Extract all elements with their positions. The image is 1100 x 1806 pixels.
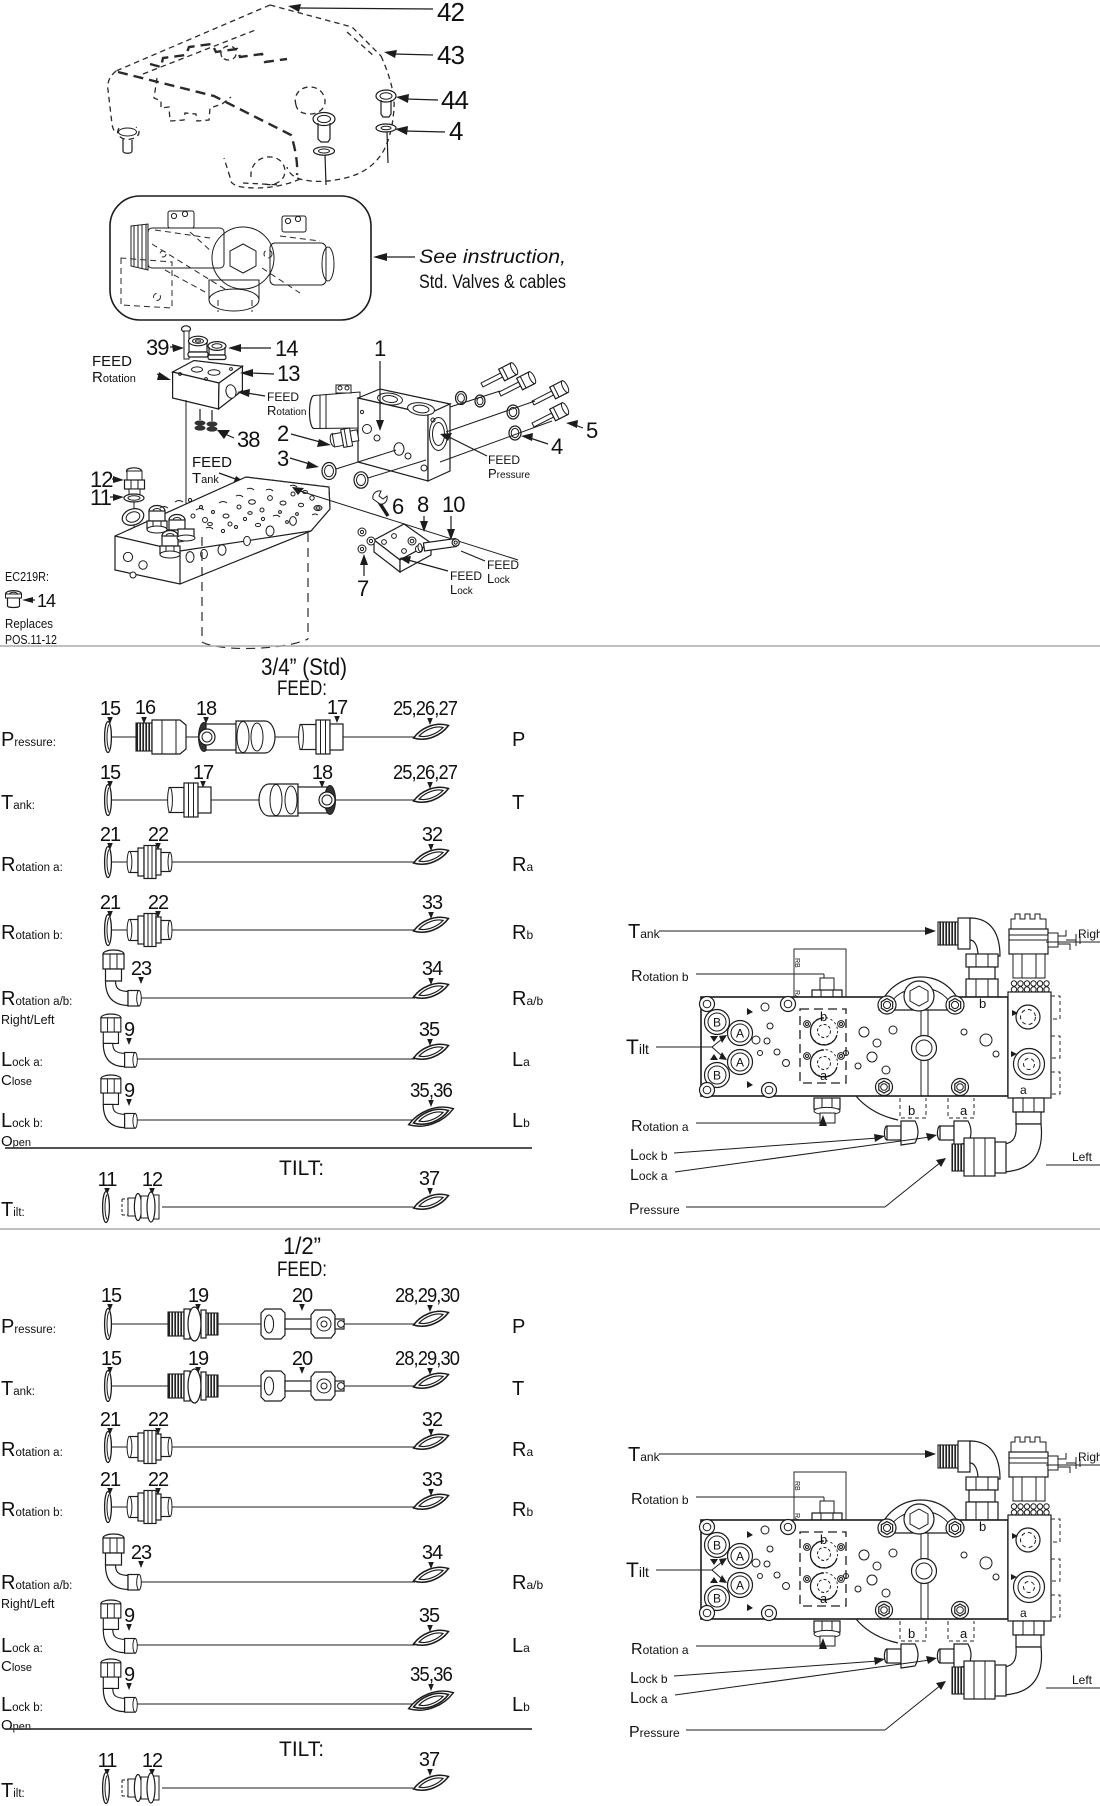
svg-text:23: 23 xyxy=(131,1542,152,1564)
svg-text:43: 43 xyxy=(437,40,464,70)
svg-text:21: 21 xyxy=(100,1409,121,1431)
svg-text:28,29,30: 28,29,30 xyxy=(395,1285,460,1307)
svg-text:23: 23 xyxy=(131,958,152,980)
svg-text:3: 3 xyxy=(277,446,289,471)
svg-text:b: b xyxy=(979,996,986,1011)
svg-text:B: B xyxy=(713,1069,721,1083)
svg-text:Right/Left: Right/Left xyxy=(1,1597,55,1611)
svg-text:Left: Left xyxy=(1072,1150,1093,1164)
svg-text:11: 11 xyxy=(90,485,112,510)
svg-text:FEED:: FEED: xyxy=(277,1258,327,1281)
svg-text:20: 20 xyxy=(292,1285,313,1307)
svg-text:18: 18 xyxy=(312,762,333,784)
svg-text:2: 2 xyxy=(277,421,289,446)
svg-text:FEED: FEED xyxy=(487,558,519,572)
svg-text:18: 18 xyxy=(196,698,217,720)
svg-text:EC219R:: EC219R: xyxy=(5,569,49,584)
svg-text:TILT:: TILT: xyxy=(279,1157,324,1180)
svg-text:28,29,30: 28,29,30 xyxy=(395,1348,460,1370)
svg-text:12: 12 xyxy=(142,1169,163,1191)
svg-text:A: A xyxy=(736,1027,744,1041)
svg-text:34: 34 xyxy=(422,1542,443,1564)
svg-text:Lock a: Lock a xyxy=(630,1167,668,1184)
svg-text:P: P xyxy=(512,729,525,751)
svg-text:32: 32 xyxy=(422,824,443,846)
svg-text:9: 9 xyxy=(124,1605,135,1627)
svg-text:See instruction,: See instruction, xyxy=(419,247,566,268)
svg-text:Right/Left: Right/Left xyxy=(1,1013,55,1027)
svg-text:14: 14 xyxy=(275,336,298,361)
svg-text:FEED: FEED xyxy=(488,453,520,467)
svg-text:11: 11 xyxy=(98,1750,118,1772)
svg-text:Lock b: Lock b xyxy=(630,1147,668,1164)
svg-text:9: 9 xyxy=(124,1019,135,1041)
svg-text:6: 6 xyxy=(392,494,404,519)
svg-text:FEED: FEED xyxy=(192,454,232,471)
svg-text:17: 17 xyxy=(327,697,348,719)
svg-text:44: 44 xyxy=(441,85,468,115)
svg-text:25,26,27: 25,26,27 xyxy=(393,762,458,784)
svg-text:TILT:: TILT: xyxy=(279,1738,324,1761)
svg-text:32: 32 xyxy=(422,1409,443,1431)
svg-text:35,36: 35,36 xyxy=(410,1080,453,1102)
svg-text:15: 15 xyxy=(101,1348,122,1370)
svg-text:22: 22 xyxy=(148,824,169,846)
svg-text:a: a xyxy=(960,1103,968,1118)
svg-text:Pressure: Pressure xyxy=(629,1201,680,1218)
svg-text:33: 33 xyxy=(422,892,443,914)
svg-text:Rotation a: Rotation a xyxy=(631,1118,689,1135)
svg-text:b: b xyxy=(908,1103,915,1118)
svg-text:10: 10 xyxy=(442,492,465,517)
svg-text:13: 13 xyxy=(277,361,300,386)
svg-text:Rotation b: Rotation b xyxy=(631,968,689,985)
svg-text:a: a xyxy=(1020,1083,1027,1097)
svg-text:34: 34 xyxy=(422,958,443,980)
svg-text:FEED: FEED xyxy=(267,390,299,404)
svg-text:42: 42 xyxy=(437,0,464,27)
svg-text:4: 4 xyxy=(449,116,463,146)
svg-text:22: 22 xyxy=(148,1469,169,1491)
svg-text:7: 7 xyxy=(357,576,369,601)
svg-text:b: b xyxy=(820,1009,827,1024)
svg-text:T: T xyxy=(512,1378,524,1400)
svg-text:FEED: FEED xyxy=(92,353,132,370)
svg-text:35,36: 35,36 xyxy=(410,1664,453,1686)
svg-text:Replaces: Replaces xyxy=(5,616,53,631)
svg-text:1/2”: 1/2” xyxy=(283,1233,321,1260)
svg-text:8: 8 xyxy=(417,492,429,517)
svg-text:35: 35 xyxy=(419,1019,440,1041)
svg-text:22: 22 xyxy=(148,1409,169,1431)
svg-text:1: 1 xyxy=(374,336,386,361)
svg-text:12: 12 xyxy=(142,1750,163,1772)
svg-text:RB: RB xyxy=(793,958,800,968)
svg-text:19: 19 xyxy=(188,1285,209,1307)
svg-text:35: 35 xyxy=(419,1605,440,1627)
svg-text:POS.11-12: POS.11-12 xyxy=(5,632,57,647)
svg-text:Std. Valves & cables: Std. Valves & cables xyxy=(419,272,566,293)
svg-text:4: 4 xyxy=(551,434,563,459)
svg-text:20: 20 xyxy=(292,1348,313,1370)
svg-text:A: A xyxy=(736,1056,744,1070)
svg-text:15: 15 xyxy=(100,698,121,720)
svg-text:FEED: FEED xyxy=(450,569,482,583)
svg-text:5: 5 xyxy=(586,418,598,443)
svg-text:T: T xyxy=(512,792,524,814)
svg-text:FEED:: FEED: xyxy=(277,677,327,700)
svg-text:17: 17 xyxy=(193,762,214,784)
svg-text:37: 37 xyxy=(419,1749,440,1771)
svg-text:37: 37 xyxy=(419,1168,440,1190)
svg-text:38: 38 xyxy=(237,427,260,452)
svg-text:21: 21 xyxy=(100,824,121,846)
svg-text:25,26,27: 25,26,27 xyxy=(393,698,458,720)
svg-text:11: 11 xyxy=(98,1169,118,1191)
svg-text:22: 22 xyxy=(148,892,169,914)
svg-text:16: 16 xyxy=(135,697,156,719)
svg-text:21: 21 xyxy=(100,1469,121,1491)
svg-text:9: 9 xyxy=(124,1664,135,1686)
svg-text:19: 19 xyxy=(188,1348,209,1370)
svg-text:P: P xyxy=(512,1316,525,1338)
svg-text:33: 33 xyxy=(422,1469,443,1491)
svg-text:Right: Right xyxy=(1078,927,1100,941)
svg-text:39: 39 xyxy=(146,335,169,360)
svg-text:B: B xyxy=(713,1016,721,1030)
svg-text:14: 14 xyxy=(37,591,56,611)
svg-text:9: 9 xyxy=(124,1080,135,1102)
svg-text:21: 21 xyxy=(100,892,121,914)
svg-text:15: 15 xyxy=(101,1285,122,1307)
svg-text:a: a xyxy=(820,1068,828,1083)
svg-text:15: 15 xyxy=(100,762,121,784)
